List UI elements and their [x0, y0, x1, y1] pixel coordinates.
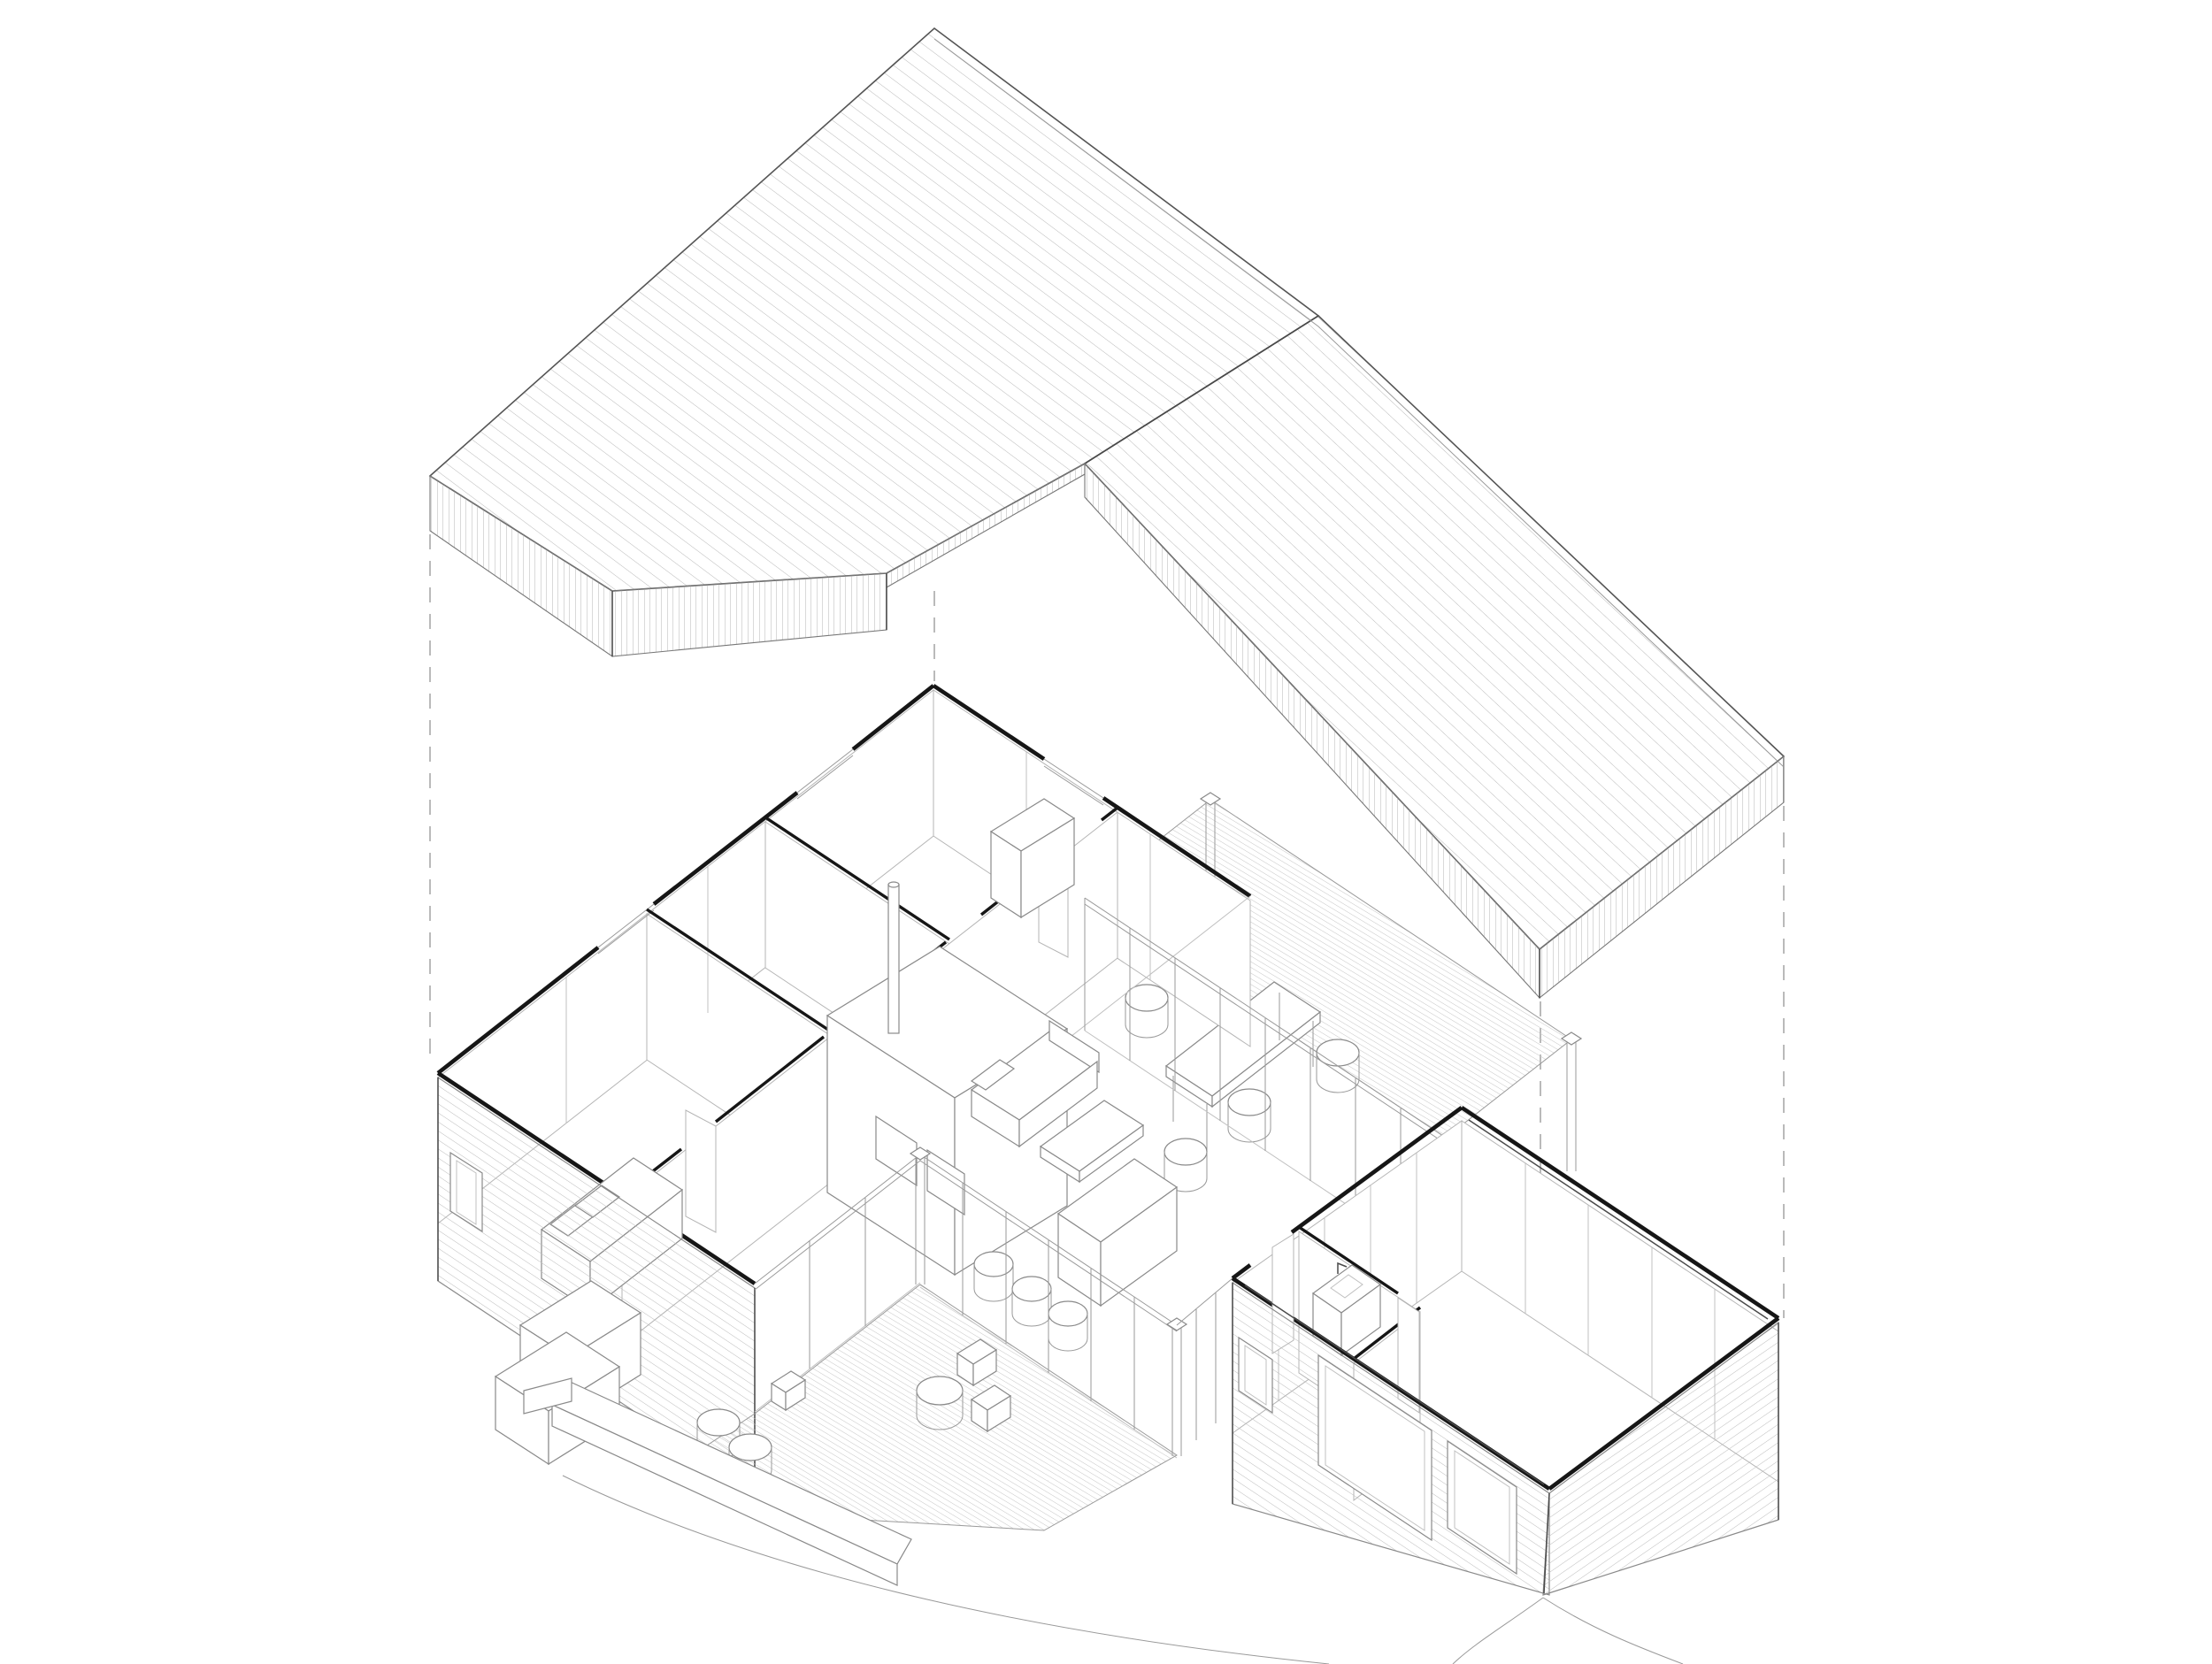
chimney-flue [888, 882, 899, 1033]
drawing-canvas [0, 0, 2212, 1664]
glazing-post [1167, 1318, 1187, 1456]
garage-wing [1233, 1108, 1778, 1595]
deck-post [1562, 1032, 1581, 1171]
axonometric-drawing [0, 0, 2212, 1664]
link-connector [1177, 1278, 1233, 1440]
